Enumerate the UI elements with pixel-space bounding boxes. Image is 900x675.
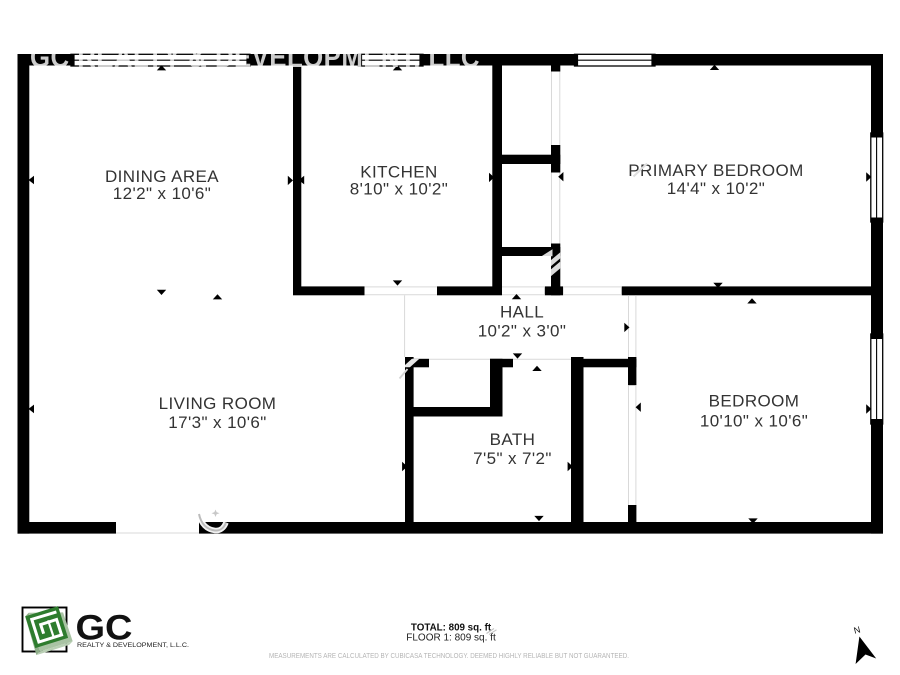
- svg-text:PRIMARY BEDROOM: PRIMARY BEDROOM: [628, 161, 803, 180]
- svg-text:GC REALTY & DEVELOPMENT, LLC: GC REALTY & DEVELOPMENT, LLC: [30, 42, 480, 74]
- svg-text:10'2" x 3'0": 10'2" x 3'0": [478, 322, 567, 341]
- svg-text:BEDROOM: BEDROOM: [709, 392, 800, 411]
- svg-text:12'2" x 10'6": 12'2" x 10'6": [113, 184, 211, 203]
- svg-text:MEASUREMENTS ARE CALCULATED BY: MEASUREMENTS ARE CALCULATED BY CUBICASA …: [269, 651, 629, 660]
- svg-text:LIVING ROOM: LIVING ROOM: [159, 394, 277, 413]
- svg-text:FLOOR 1: 809 sq. ft: FLOOR 1: 809 sq. ft: [406, 632, 496, 643]
- svg-text:7'5" x 7'2": 7'5" x 7'2": [473, 449, 552, 468]
- svg-text:10'10" x 10'6": 10'10" x 10'6": [700, 412, 808, 431]
- svg-text:8'10" x 10'2": 8'10" x 10'2": [350, 180, 448, 199]
- svg-text:BATH: BATH: [490, 430, 536, 449]
- svg-text:REALTY & DEVELOPMENT, L.L.C.: REALTY & DEVELOPMENT, L.L.C.: [77, 642, 189, 649]
- svg-text:HALL: HALL: [500, 303, 544, 322]
- svg-text:14'4" x 10'2": 14'4" x 10'2": [667, 179, 765, 198]
- svg-text:17'3" x 10'6": 17'3" x 10'6": [168, 413, 266, 432]
